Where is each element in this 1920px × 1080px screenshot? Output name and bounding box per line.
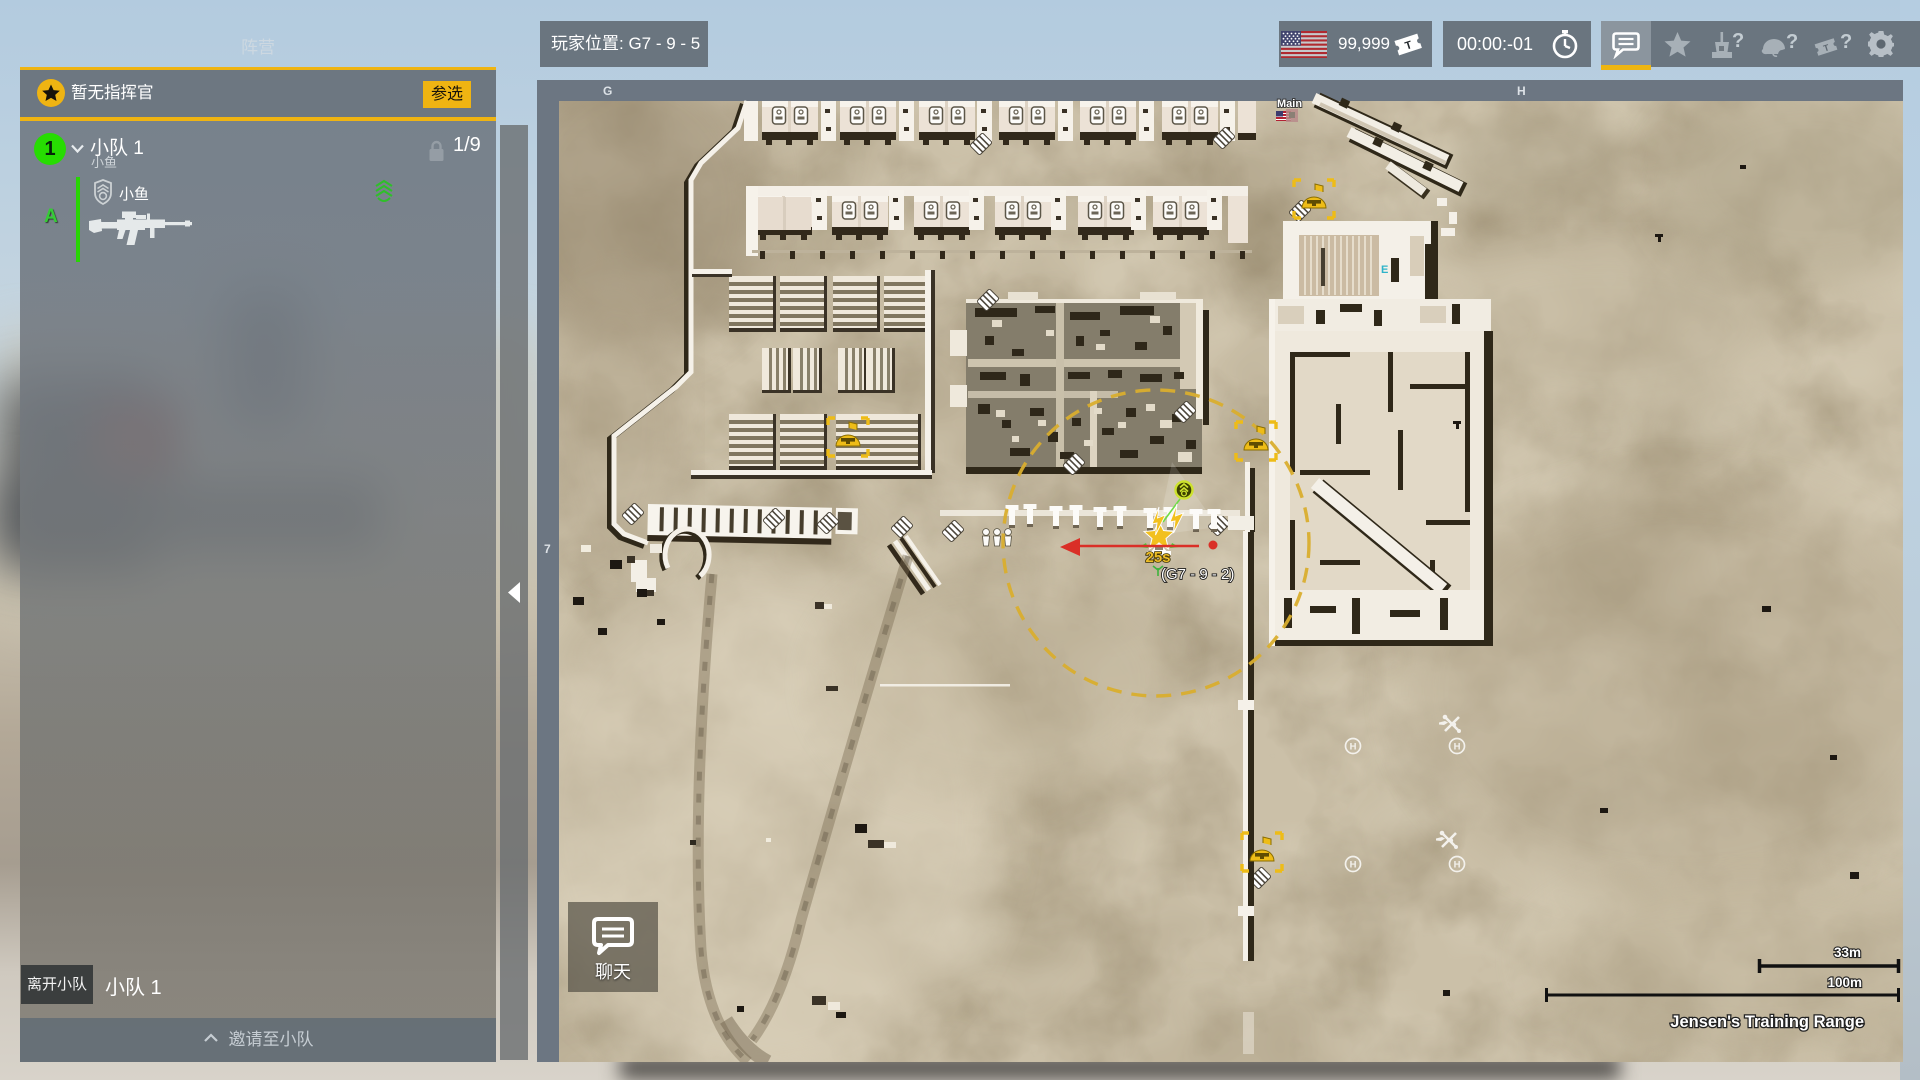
svg-text:Main: Main: [1277, 98, 1302, 110]
svg-text:G: G: [603, 84, 612, 98]
svg-text:(G7 - 9 - 2): (G7 - 9 - 2): [1161, 566, 1234, 583]
svg-text:Jensen's Training Range: Jensen's Training Range: [1670, 1013, 1864, 1031]
svg-text:?: ?: [1786, 31, 1798, 53]
svg-text:?: ?: [1840, 31, 1852, 53]
svg-text:H: H: [1517, 84, 1526, 98]
svg-text:7: 7: [544, 542, 551, 556]
svg-text:E: E: [1381, 264, 1388, 276]
svg-text:?: ?: [1732, 30, 1744, 52]
svg-text:100m: 100m: [1827, 975, 1862, 990]
svg-text:25s: 25s: [1145, 549, 1170, 566]
svg-text:33m: 33m: [1834, 945, 1861, 960]
